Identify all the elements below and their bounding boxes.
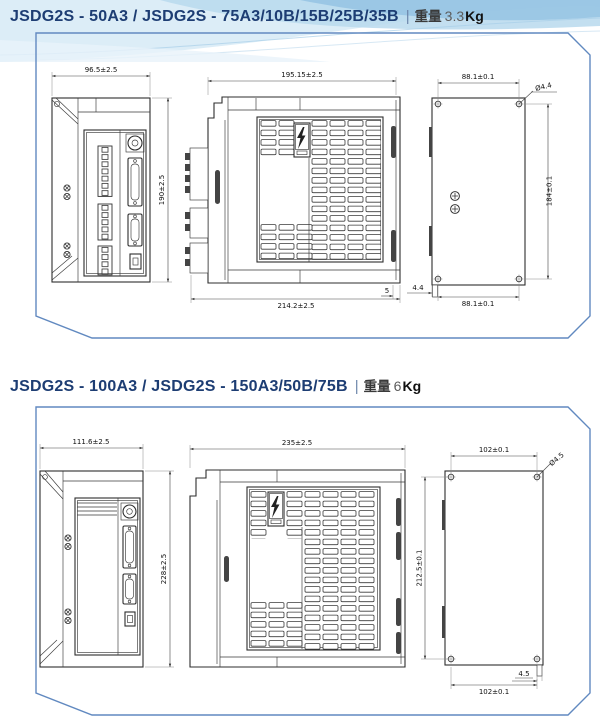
- dim-back-pitch-top-s1: 88.1±0.1: [462, 73, 495, 81]
- dim-side-top-width-s1: 195.15±2.5: [281, 71, 323, 79]
- section2-weight-unit: Kg: [402, 378, 421, 394]
- dim-front-height-s1: 190±2.5: [158, 175, 166, 205]
- handle-slot: [224, 556, 229, 582]
- side-tab: [442, 500, 446, 530]
- section2-weight-value: 6: [394, 378, 402, 394]
- bottom-tab: [537, 665, 542, 676]
- bottom-tab: [433, 285, 438, 297]
- side-tab: [429, 226, 433, 256]
- dim-back-hole-dia-s2: Ø4.5: [548, 451, 566, 468]
- warning-label: [268, 492, 284, 526]
- section2-front-view: 111.6±2.5 228±2.5: [40, 438, 174, 667]
- dim-side-gap-s1: 5: [385, 287, 389, 295]
- section1-weight-value: 3.3: [445, 8, 464, 24]
- dim-back-pitch-top-s2: 102±0.1: [479, 446, 509, 454]
- dim-back-tab-s1: 4.4: [412, 284, 424, 292]
- terminal-blocks: [98, 146, 112, 275]
- side-tab: [442, 606, 446, 638]
- dim-back-tab-s2: 4.5: [518, 670, 529, 678]
- side-tab: [429, 127, 433, 157]
- warning-label: [294, 123, 310, 157]
- section1-side-view: 195.15±2.5 214.2±2.5 5: [185, 71, 400, 310]
- section1-back-view: 88.1±0.1 Ø4.4 184±0.1 88.1±0.1 4.4: [407, 73, 557, 308]
- section2-back-view: 102±0.1 Ø4.5 212.5±0.1 102±0.1 4.5: [416, 446, 566, 696]
- dim-back-height-s2: 212.5±0.1: [416, 549, 424, 586]
- side-vent-slot-right: [396, 598, 401, 626]
- dim-side-top-width-s2: 235±2.5: [282, 439, 312, 447]
- section1-weight-unit: Kg: [465, 8, 484, 24]
- dim-back-height-s1: 184±0.1: [546, 176, 554, 206]
- dim-front-width-s2: 111.6±2.5: [72, 438, 109, 446]
- section1-front-view: 96.5±2.5 190±2.5: [52, 66, 172, 282]
- title-separator: |: [355, 378, 359, 395]
- dim-side-bottom-width-s1: 214.2±2.5: [277, 302, 314, 310]
- dim-back-pitch-bottom-s2: 102±0.1: [479, 688, 509, 696]
- title-separator: |: [406, 8, 410, 25]
- dimension-drawings: 96.5±2.5 190±2.5 195.15±2.5 214.2±2.5 5: [0, 0, 600, 720]
- side-vent-slot-right: [396, 532, 401, 560]
- side-vent-slot-right: [391, 126, 396, 158]
- dim-back-pitch-bottom-s1: 88.1±0.1: [462, 300, 495, 308]
- handle-slot: [215, 170, 220, 204]
- section2-model-names: JSDG2S - 100A3 / JSDG2S - 150A3/50B/75B: [10, 378, 348, 395]
- section1-weight-label: 重量: [415, 9, 442, 24]
- datasheet-page: 96.5±2.5 190±2.5 195.15±2.5 214.2±2.5 5: [0, 0, 600, 720]
- dim-back-hole-dia-s1: Ø4.4: [534, 81, 553, 93]
- side-vent-slot-right: [396, 498, 401, 526]
- dim-front-height-s2: 228±2.5: [160, 554, 168, 584]
- section1-title: JSDG2S - 50A3 / JSDG2S - 75A3/10B/15B/25…: [10, 5, 484, 26]
- side-vent-slot-right: [396, 632, 401, 654]
- dim-front-width-s1: 96.5±2.5: [85, 66, 118, 74]
- section2-weight-label: 重量: [364, 379, 391, 394]
- section1-model-names: JSDG2S - 50A3 / JSDG2S - 75A3/10B/15B/25…: [10, 8, 399, 25]
- section2-side-view: 235±2.5: [190, 439, 405, 667]
- side-terminal-tabs: [185, 148, 208, 273]
- section2-title: JSDG2S - 100A3 / JSDG2S - 150A3/50B/75B|…: [10, 375, 421, 396]
- side-vent-slot-right: [391, 230, 396, 262]
